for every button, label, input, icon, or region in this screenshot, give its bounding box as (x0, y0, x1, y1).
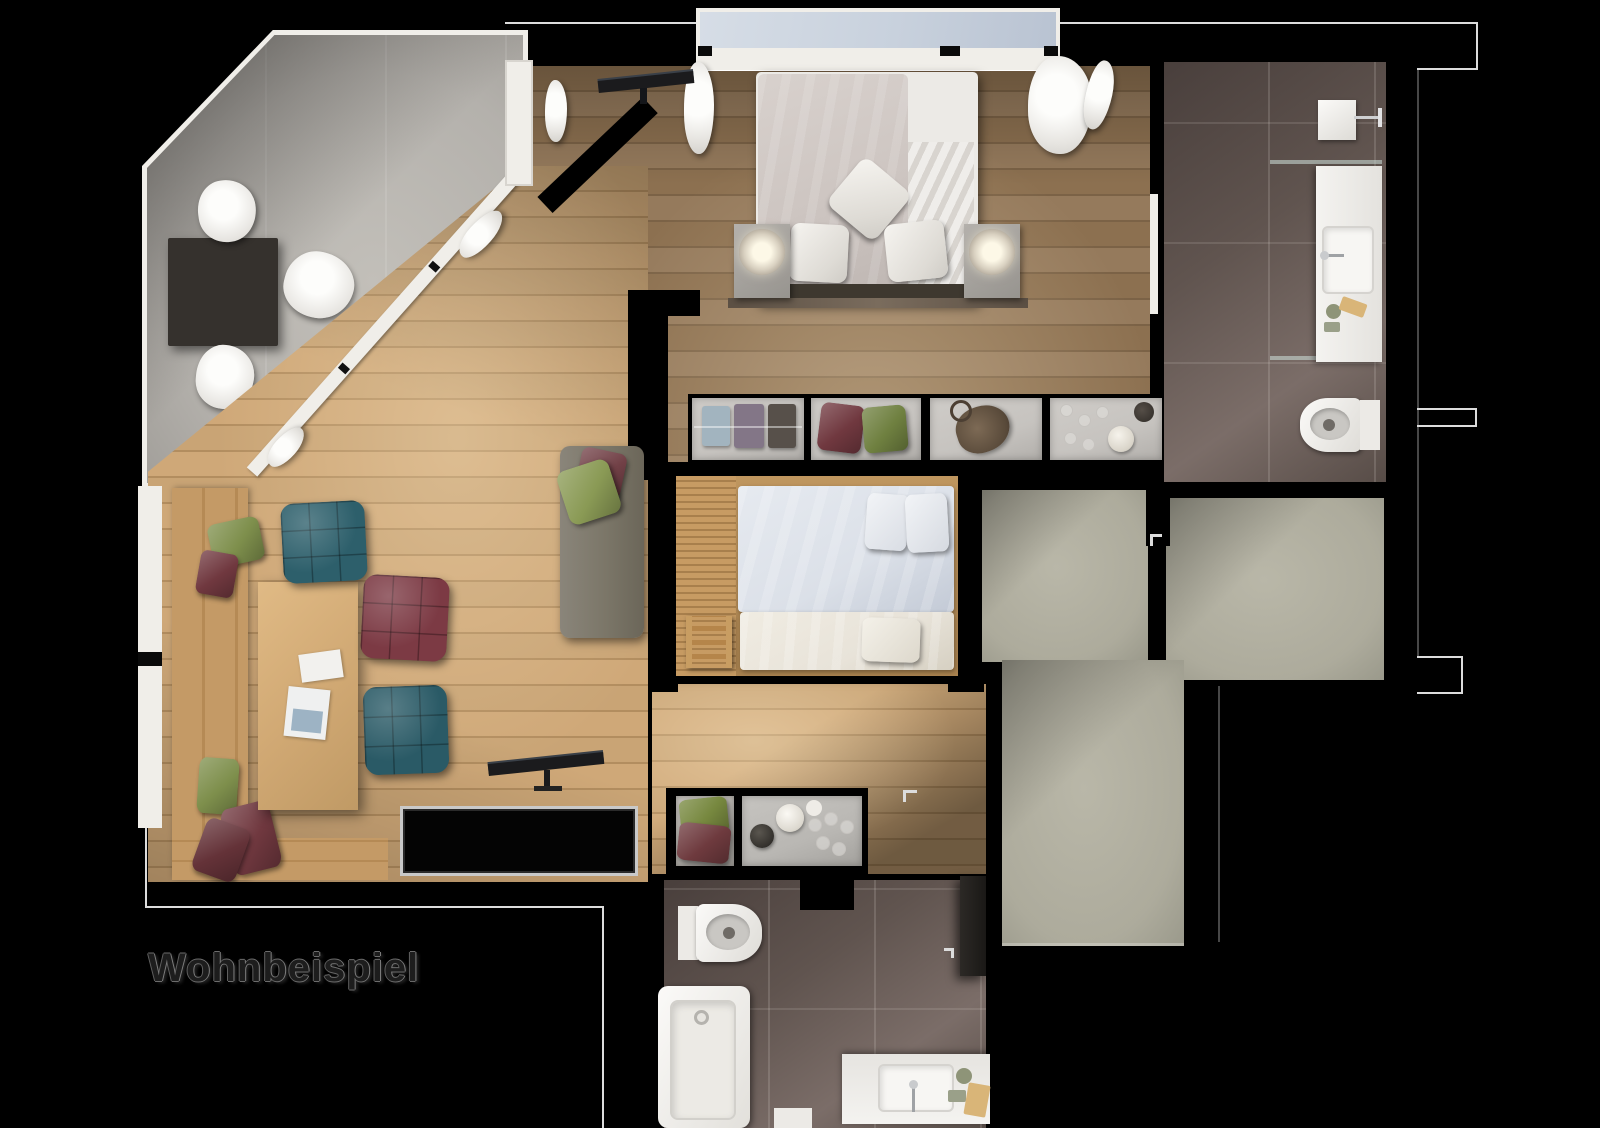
open-door-leaf (960, 876, 986, 976)
magazine-photo (291, 708, 323, 733)
floor-plan-rendering: Wohnbeispiel (0, 0, 1600, 1128)
door-swing-mark (903, 790, 906, 802)
drinking-glass (1082, 438, 1095, 451)
exterior-outline-step (1417, 68, 1478, 70)
toilet-cistern (678, 906, 698, 960)
drinking-glass (824, 812, 838, 826)
toilet-drain (1323, 419, 1335, 431)
drinking-glass (1096, 406, 1109, 419)
exterior-outline-bottom-step (602, 906, 604, 1128)
exterior-outline-left (145, 826, 147, 908)
wash-basin (1322, 226, 1374, 294)
glass-shelf (1270, 160, 1382, 164)
window-mullion (138, 652, 162, 666)
door-swing-mark (1150, 534, 1153, 546)
bench-pillow-maroon (194, 549, 239, 599)
shower-head (1318, 100, 1356, 140)
window-outline-notch-bottom (1417, 425, 1477, 427)
door-outline-bracket-top (1417, 656, 1463, 658)
kids-bed-pillow (905, 493, 950, 553)
caption: Wohnbeispiel (148, 946, 419, 991)
soap-bar (948, 1090, 966, 1102)
drinking-glass (1060, 404, 1073, 417)
wooden-tray (963, 1082, 990, 1117)
white-cup (806, 800, 822, 816)
sideboard-compartment-sculpture (930, 398, 1042, 460)
wall (648, 462, 678, 692)
black-kettle (750, 824, 774, 848)
bed-shelf (728, 298, 1028, 308)
drinking-glass (832, 842, 846, 856)
curtain (545, 80, 567, 142)
exterior-outline-bottom-right (1218, 686, 1220, 942)
vanity-counter (1316, 166, 1382, 362)
ladder (686, 616, 732, 668)
white-kettle (1108, 426, 1134, 452)
bedroom-tv-stand (640, 88, 647, 104)
pocket-door (1150, 194, 1158, 314)
drinking-glass (1078, 414, 1091, 427)
wall (628, 290, 700, 316)
hallway-floor (1166, 498, 1384, 680)
kitchenette (666, 788, 868, 876)
door-handle-mark (951, 948, 954, 958)
balcony-door (505, 60, 533, 186)
curtain-track-mark (698, 46, 712, 56)
kettle-handle (950, 400, 972, 422)
bathtub-drain (694, 1010, 709, 1025)
sideboard-compartment-glasses (1050, 398, 1162, 460)
pouf-teal (280, 500, 368, 584)
faucet (912, 1086, 915, 1112)
white-teapot (776, 804, 804, 832)
hallway-floor (982, 490, 1148, 662)
soap-bar (1324, 322, 1340, 332)
pillow-maroon (816, 401, 866, 454)
bed-pillow (789, 223, 850, 284)
exterior-outline-right (1417, 70, 1419, 658)
kids-bed-pillow (864, 493, 910, 552)
glass-shelf-edge (694, 426, 802, 428)
door-outline-bracket-side (1461, 656, 1463, 694)
toilet (1300, 398, 1380, 452)
pillow-green (861, 404, 909, 454)
window-outline-notch-side (1475, 408, 1477, 427)
niche-outline (400, 806, 638, 876)
kitchenette-counter (742, 796, 862, 866)
sideboard-compartment-towels (692, 398, 804, 460)
bedroom-window (696, 8, 1060, 70)
hallway-floor (1002, 660, 1184, 946)
bath-vanity (842, 1054, 990, 1124)
sideboard (688, 394, 1166, 464)
toilet-drain (723, 927, 735, 939)
living-tv-base (534, 786, 562, 791)
door-outline-bracket-bottom (1417, 692, 1463, 694)
paper-on-table (298, 649, 343, 683)
drinking-glass (840, 820, 854, 834)
trundle-bed (740, 612, 954, 670)
wooden-tray (1338, 296, 1367, 318)
curtain-track-mark (940, 46, 960, 56)
pouf-teal (362, 685, 449, 776)
glazing-mullion (338, 362, 350, 374)
glazing-mullion (428, 261, 440, 273)
bathtub (658, 986, 750, 1128)
faucet-knob (909, 1080, 918, 1089)
curtain-track-mark (1044, 46, 1058, 56)
exterior-outline-bottom (146, 906, 604, 908)
pouf-maroon (360, 574, 450, 662)
toilet (678, 904, 762, 962)
window-band-left (138, 486, 162, 828)
window-glass (700, 12, 1056, 48)
bath-mat (774, 1108, 812, 1128)
balcony-table (168, 238, 278, 346)
shelf-pillow-maroon (676, 821, 732, 864)
bed-pillow (883, 219, 949, 283)
drinking-glass (808, 818, 822, 832)
trundle-pillow (861, 617, 921, 663)
toilet-cistern (1360, 400, 1380, 450)
drinking-glass (1064, 432, 1077, 445)
dark-teapot (1134, 402, 1154, 422)
exterior-outline-top-right (1476, 22, 1478, 70)
coffee-table (258, 582, 358, 810)
drinking-glass (816, 836, 830, 850)
curtain (1028, 56, 1092, 154)
window-outline-notch-top (1417, 408, 1477, 410)
shower-valve (1378, 108, 1382, 127)
sideboard-compartment-pillows (811, 398, 921, 460)
wall (800, 880, 854, 910)
table-lamp (739, 229, 785, 275)
faucet-knob (1320, 251, 1329, 260)
table-lamp (969, 229, 1015, 275)
